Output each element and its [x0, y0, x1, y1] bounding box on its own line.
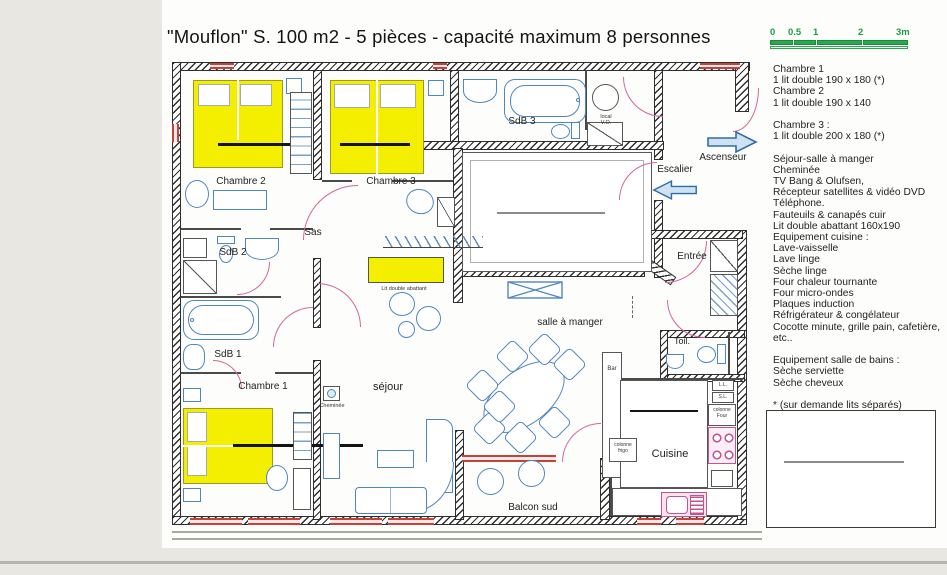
legend-line: TV Bang & Olufsen,: [773, 176, 945, 187]
room-label-sejour: séjour: [352, 381, 424, 393]
bed-dimension-line: [218, 143, 292, 146]
label-local-vo: local V.O.: [590, 114, 622, 126]
room-label-chambre2: Chambre 2: [205, 176, 277, 187]
scale-tick: 3m: [896, 27, 910, 38]
label-seche-linge: S.L.: [712, 394, 734, 400]
legend-line: Cocotte minute, grille pain, cafetière,: [773, 322, 945, 333]
chair-chambre3: [403, 185, 438, 218]
desk-chambre2: [213, 190, 267, 210]
armchair: [389, 292, 415, 316]
scale-baseline: [770, 46, 908, 49]
door-arc-chambre1: [273, 307, 313, 347]
legend-line: [773, 142, 945, 153]
wall-chambre2-chambre3: [313, 70, 322, 180]
scale-tick: 1: [813, 27, 818, 38]
toilet-tank: [717, 344, 726, 364]
kitchen-sink-drainer: [690, 495, 704, 515]
scale-segment: [863, 40, 908, 45]
legend-line: Chambre 3 :: [773, 120, 945, 131]
corridor-closet: [437, 197, 455, 227]
scale-bar: 0 0.5 1 2 3m: [770, 27, 912, 51]
legend-line: Lave-vaisselle: [773, 243, 945, 254]
nightstand: [183, 488, 201, 502]
wall-sdb3-bottom: [408, 141, 664, 150]
chair-chambre1: [266, 465, 288, 491]
legend-line: Lit double abattant 160x190: [773, 221, 945, 232]
legend-line: 1 lit double 200 x 180 (*): [773, 131, 945, 142]
shower-sdb2: [183, 260, 217, 294]
sink-toil: [666, 354, 684, 369]
counter-sdb2: [183, 238, 207, 258]
window: [248, 518, 300, 525]
pillow: [187, 412, 207, 442]
scale-tick: 2: [858, 27, 863, 38]
kitchen-sink-basin: [666, 496, 688, 514]
window: [676, 518, 704, 525]
door-arc-sdb3: [623, 77, 663, 117]
legend-line: Four micro-ondes: [773, 288, 945, 299]
window: [388, 518, 434, 525]
kitchen-island: [620, 380, 708, 488]
dresser-chambre1: [293, 468, 311, 510]
legend-line: Réfrigérateur & congélateur: [773, 310, 945, 321]
label-cheminee: Cheminée: [310, 403, 354, 409]
fold-down-bed: [368, 257, 444, 283]
legend-line: Equipement cuisine :: [773, 232, 945, 243]
door-arc-landing: [733, 88, 759, 132]
scale-segment: [817, 40, 862, 45]
window-left-wall: [172, 124, 179, 142]
room-label-balcon-sud: Balcon sud: [493, 502, 573, 513]
window: [330, 518, 382, 525]
legend-line: Sèche serviette: [773, 366, 945, 377]
door-arc-entree: [665, 241, 707, 283]
legend-line: Equipement salle de bains :: [773, 355, 945, 366]
wall-spine-lower: [313, 360, 321, 520]
legend-line: etc..: [773, 333, 945, 344]
balcony-chair: [477, 468, 504, 495]
bathtub-inner: [188, 305, 254, 335]
bed-dimension-line: [340, 143, 410, 146]
label-ascenseur: Ascenseur: [683, 152, 763, 163]
legend-line: Sèche cheveux: [773, 378, 945, 389]
entree-closet-top: [710, 240, 738, 272]
legend-line: [773, 109, 945, 120]
faucet-dot: [190, 318, 194, 322]
room-label-toil: Toil.: [664, 336, 700, 346]
cooktop: [708, 427, 736, 464]
sofa-seam: [390, 488, 391, 513]
legend-line: Chambre 1: [773, 64, 945, 75]
wall-sdb3-left: [450, 70, 459, 142]
void-fine-print-line: [497, 212, 605, 214]
legend-line: Four chaleur tournante: [773, 277, 945, 288]
legend-line: [773, 389, 945, 400]
railing-line: [172, 531, 762, 533]
wardrobe-chambre1: [293, 412, 312, 460]
door-arc-balcon: [562, 423, 601, 462]
room-label-sdb1: SdB 1: [204, 349, 252, 360]
room-label-salle-a-manger: salle à manger: [520, 317, 620, 328]
window-top-wall: [433, 63, 447, 69]
window-top-wall: [700, 63, 740, 69]
stairs-arrow-icon: [652, 179, 698, 201]
garbage-chute-circle: [592, 84, 619, 111]
scale-tick: 0.5: [788, 27, 801, 38]
pillow: [380, 84, 416, 108]
armchair: [416, 306, 441, 331]
kitchen-cabinet: [711, 470, 733, 487]
legend-line: [773, 344, 945, 355]
pillow: [198, 84, 230, 106]
sink-sdb1: [183, 344, 205, 370]
wall-top: [172, 62, 750, 71]
fireplace-flue: [327, 389, 336, 398]
nightstand: [428, 80, 444, 96]
legend-line: Plaques induction: [773, 299, 945, 310]
lift-arrow-icon: [706, 130, 758, 154]
wall-entree-top: [640, 230, 743, 239]
legend-line: Chambre 2: [773, 86, 945, 97]
page-title: "Mouflon" S. 100 m2 - 5 pièces - capacit…: [167, 26, 767, 48]
legend-line: Cheminée: [773, 165, 945, 176]
sink-sdb3: [463, 79, 497, 103]
toilet-bowl: [551, 124, 570, 139]
legend-line: Fauteuils & canapés cuir: [773, 210, 945, 221]
window-top-wall: [210, 63, 234, 69]
label-escalier: Escalier: [640, 164, 710, 175]
legend-line: Séjour-salle à manger: [773, 154, 945, 165]
wall-balcony-left: [455, 430, 464, 520]
legend-line: Téléphone.: [773, 198, 945, 209]
legend-line: Lave linge: [773, 254, 945, 265]
partition-sdb1-chambre1: [275, 372, 313, 374]
legend-line: 1 lit double 190 x 140: [773, 98, 945, 109]
bed-split-line: [376, 80, 378, 174]
entree-closet-shelves: [710, 274, 738, 316]
partition-chambre2-sdb2: [181, 228, 241, 230]
partition-toil-right: [728, 332, 730, 374]
faucet-dot: [576, 98, 580, 102]
label-local-line2: V.O.: [601, 120, 612, 126]
legend-line: Sèche linge: [773, 266, 945, 277]
label-colonne-frigo: colonne frigo: [610, 442, 636, 454]
room-label-chambre1: Chambre 1: [227, 381, 299, 392]
coffee-table: [377, 450, 414, 468]
label-lit-double-abattant: Lit double abattant: [358, 286, 450, 292]
pillow: [240, 84, 272, 106]
kitchen-counter-line: [630, 410, 698, 412]
side-table: [398, 321, 415, 338]
cabinet-sejour: [323, 433, 340, 479]
bathtub-inner: [510, 85, 580, 117]
folding-table-x: [507, 281, 563, 299]
threshold-dashed-line: [632, 296, 634, 318]
partition-sdb2-sdb1: [181, 296, 281, 298]
scale-segment: [794, 40, 816, 45]
toilet-bowl: [697, 346, 716, 363]
balcony-chair: [518, 460, 545, 487]
window: [637, 518, 661, 525]
pillow: [334, 84, 370, 108]
door-arc-sejour: [317, 283, 361, 327]
bed-split-line: [237, 80, 239, 140]
scanned-floor-plan-page: "Mouflon" S. 100 m2 - 5 pièces - capacit…: [0, 0, 947, 575]
label-bar: Bar: [603, 366, 621, 372]
nightstand: [183, 388, 201, 402]
legend-text: Chambre 11 lit double 190 x 180 (*)Chamb…: [773, 64, 945, 411]
room-label-sas: Sas: [295, 227, 331, 238]
note-box: [766, 410, 936, 528]
toilet-tank: [217, 236, 235, 244]
toilet-tank: [571, 122, 580, 139]
sliding-door-balcony: [462, 455, 556, 462]
scan-edge-line: [0, 561, 947, 564]
note-box-fine-print-line: [784, 461, 904, 463]
room-label-chambre3: Chambre 3: [355, 176, 427, 187]
door-arc-sdb2: [237, 262, 270, 295]
legend-line: Récepteur satellites & vidéo DVD: [773, 187, 945, 198]
room-label-cuisine: Cuisine: [634, 448, 706, 460]
legend-line: 1 lit double 190 x 180 (*): [773, 75, 945, 86]
left-page-margin: [0, 0, 162, 575]
coat-rack: [383, 236, 483, 248]
room-label-sdb3: SdB 3: [498, 116, 546, 127]
scale-segment: [770, 40, 793, 45]
partition-chambre3-sas: [322, 180, 352, 182]
window: [190, 518, 242, 525]
railing-line: [172, 538, 762, 540]
room-label-sdb2: SdB 2: [209, 247, 257, 258]
pillow: [187, 446, 207, 476]
label-colonne-four: colonne Four: [709, 407, 735, 419]
scale-tick: 0: [770, 27, 775, 38]
label-lave-linge: L.L.: [712, 382, 734, 388]
wardrobe-chambre2: [290, 92, 312, 174]
